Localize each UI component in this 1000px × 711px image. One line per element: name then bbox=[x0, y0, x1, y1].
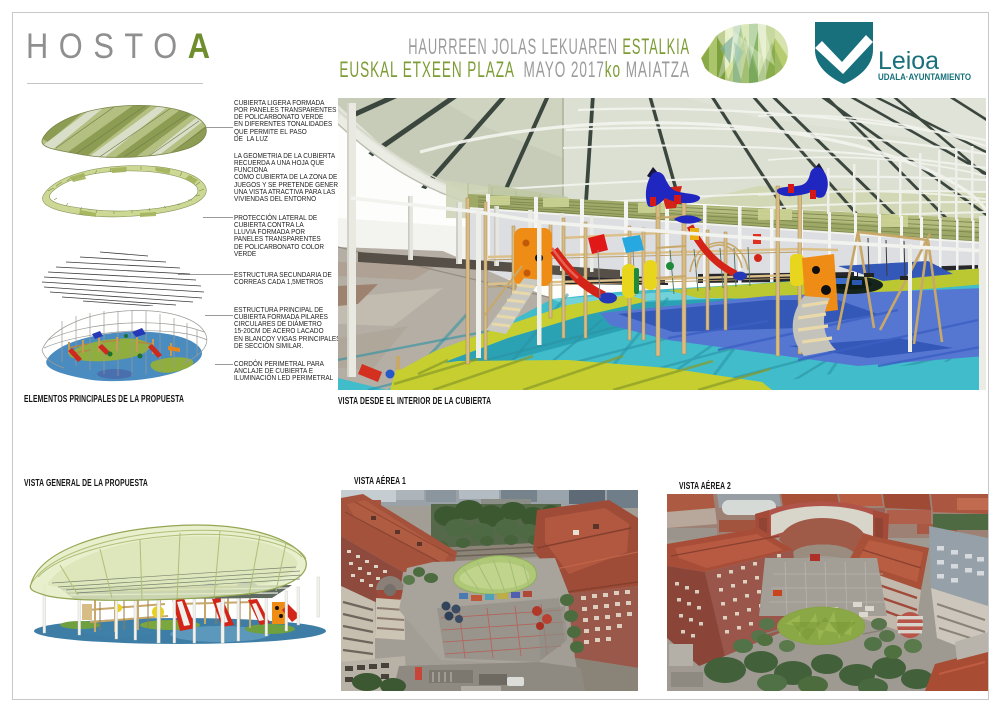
svg-text:UDALA·AYUNTAMIENTO: UDALA·AYUNTAMIENTO bbox=[878, 72, 971, 83]
svg-text:Leioa: Leioa bbox=[878, 47, 939, 75]
